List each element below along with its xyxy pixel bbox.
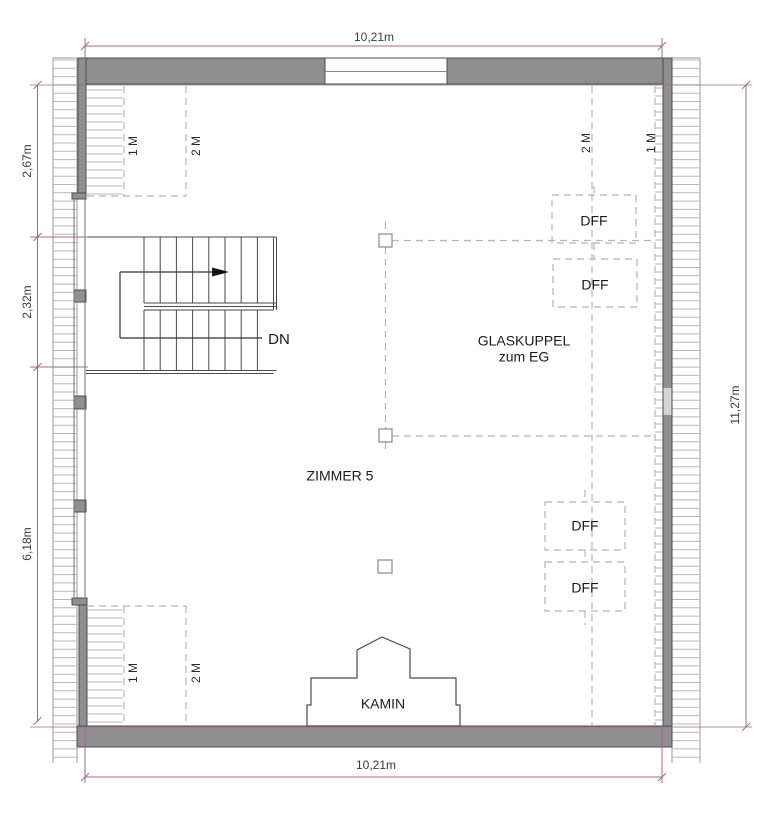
label-2m-top-left: 2 M (189, 136, 203, 156)
roof-windows (545, 186, 637, 625)
label-1m-bottom-left: 1 M (126, 663, 140, 683)
dim-top-label: 10,21m (354, 30, 394, 44)
chimney-outline (307, 637, 460, 726)
height-line-labels: 1 M 2 M 1 M 2 M 2 M 1 M (126, 133, 658, 683)
stair-direction-label: DN (268, 331, 290, 348)
chimney-label: KAMIN (361, 696, 405, 712)
floor-plan-canvas: DN GLASKUPPEL zum EG DFF DFF DFF DFF ZIM… (0, 0, 778, 813)
dim-right-label: 11,27m (728, 385, 742, 424)
skylight-label-line1: GLASKUPPEL (478, 333, 571, 349)
roof-window-label-4: DFF (571, 580, 598, 596)
wall-left-pier-1 (74, 290, 86, 302)
dim-bottom-label: 10,21m (356, 758, 396, 772)
room-label: ZIMMER 5 (307, 468, 374, 484)
wall-top-right-segment (447, 58, 663, 84)
skylight-label-line2: zum EG (499, 349, 550, 365)
label-2m-bottom-left: 2 M (189, 663, 203, 683)
label-1m-top-left: 1 M (126, 136, 140, 156)
dim-left-middle-label: 2,32m (20, 285, 34, 318)
dim-left-lower-label: 6,18m (20, 527, 34, 560)
wall-left-jog-lower (72, 598, 87, 605)
roof-height-dashed-lines (87, 86, 655, 725)
ridge-window (325, 58, 447, 84)
floor-plan-drawing: DN GLASKUPPEL zum EG DFF DFF DFF DFF ZIM… (0, 0, 778, 813)
roof-window-label-2: DFF (581, 277, 608, 293)
corner-marker-bottom (379, 429, 392, 442)
corner-marker-top (379, 234, 392, 247)
wall-left-jog-upper (72, 193, 86, 199)
staircase (86, 237, 277, 374)
wall-left-upper (78, 58, 86, 194)
roof-window-label-1: DFF (580, 213, 607, 229)
wall-left-lower (79, 598, 87, 726)
wall-top-left-segment (86, 58, 325, 84)
wall-bottom (77, 726, 672, 747)
wall-left-pier-3 (74, 500, 86, 512)
label-2m-right: 2 M (579, 133, 593, 153)
right-wall-window (664, 388, 672, 415)
label-1m-right: 1 M (644, 133, 658, 153)
roof-window-label-3: DFF (571, 518, 598, 534)
dim-left-upper-label: 2,67m (20, 144, 34, 177)
walk-direction-arrow (212, 268, 229, 277)
wall-left-pier-2 (74, 396, 86, 409)
column-marker (378, 560, 392, 573)
